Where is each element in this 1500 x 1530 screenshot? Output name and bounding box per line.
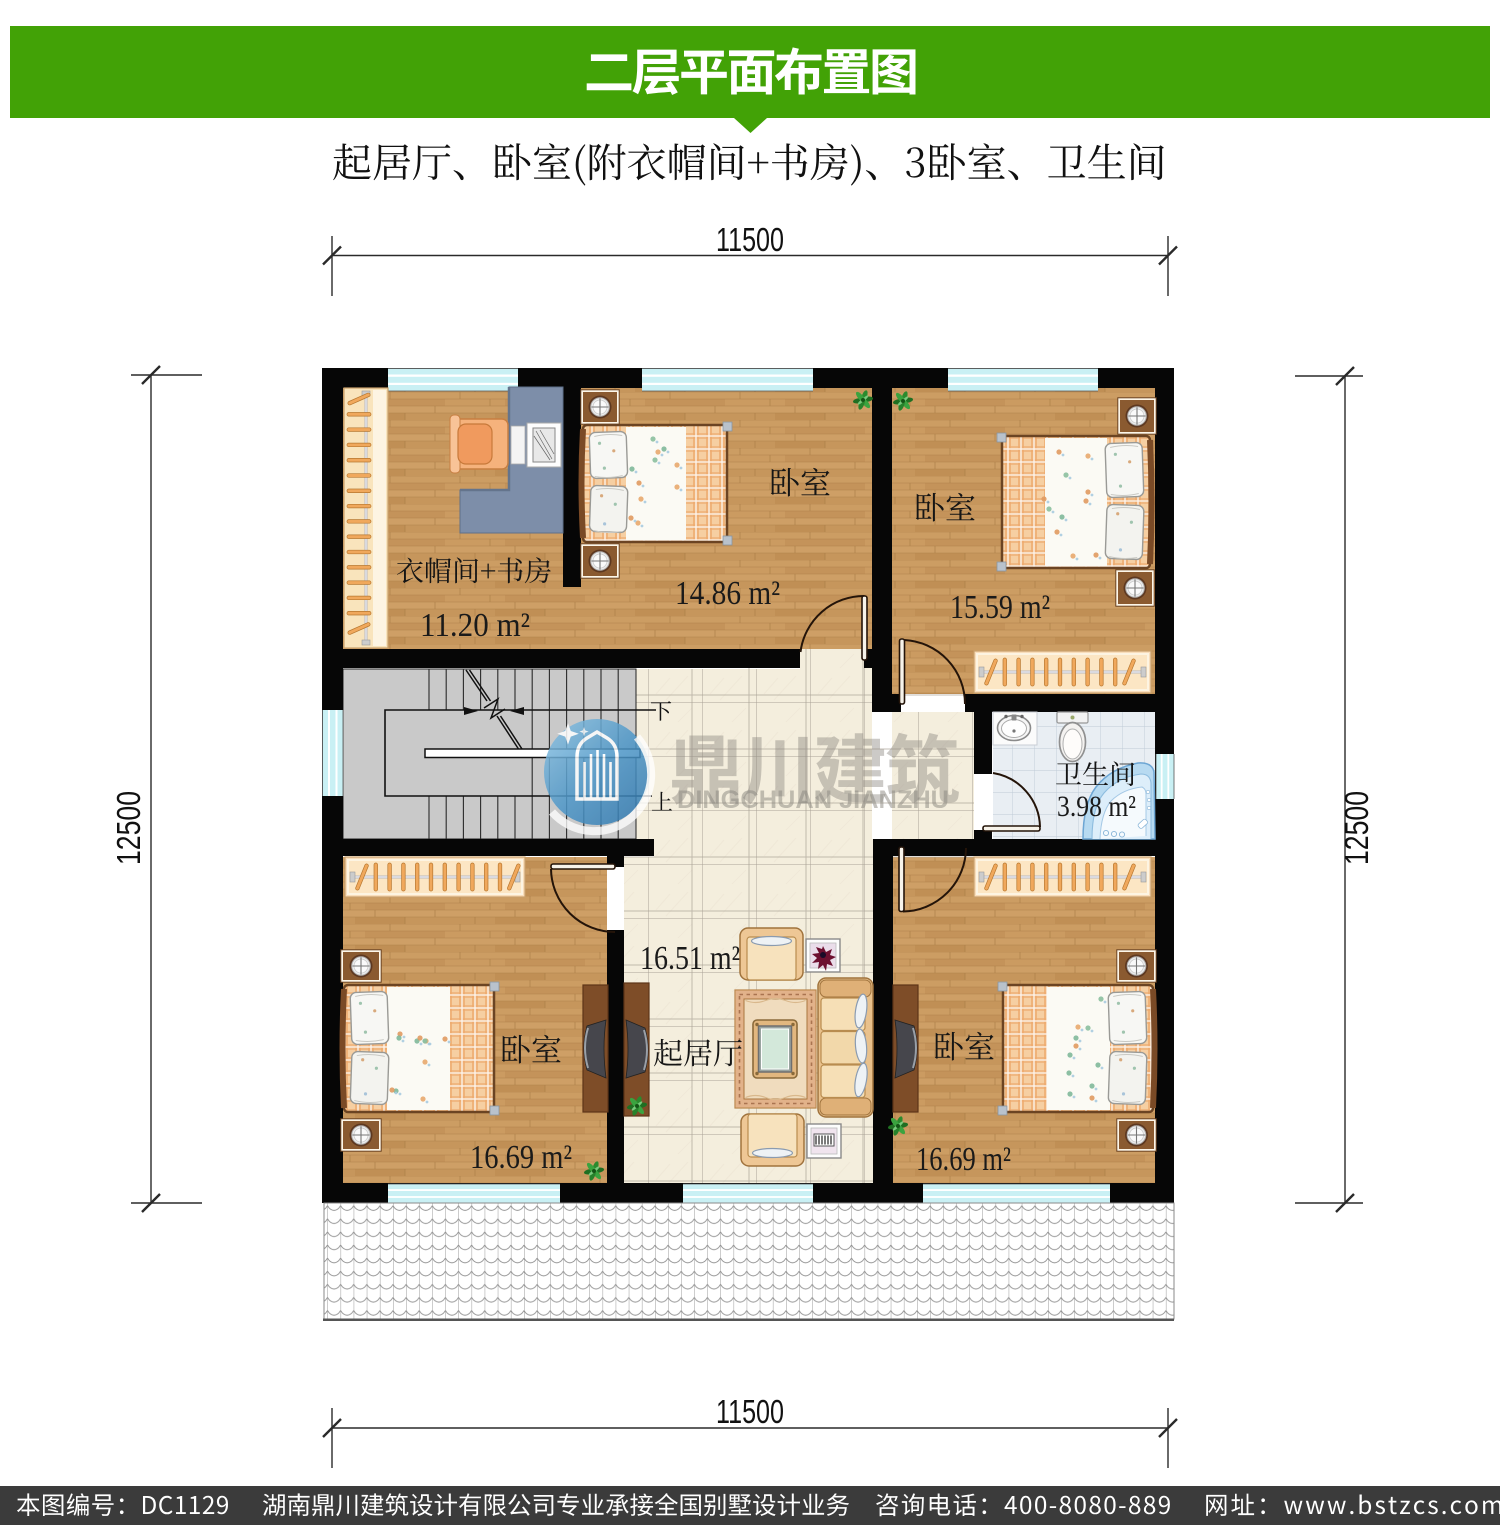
svg-text:16.51 m²: 16.51 m² [640,940,740,977]
svg-text:16.69 m²: 16.69 m² [470,1139,572,1176]
svg-text:14.86 m²: 14.86 m² [675,575,780,612]
svg-text:DINGCHUAN JIANZHU: DINGCHUAN JIANZHU [677,786,949,814]
svg-text:11500: 11500 [716,1393,784,1430]
svg-text:16.69 m²: 16.69 m² [916,1141,1011,1178]
svg-text:3.98 m²: 3.98 m² [1057,790,1136,823]
svg-text:12500: 12500 [1338,791,1375,865]
svg-text:11500: 11500 [716,221,784,258]
svg-text:12500: 12500 [110,791,147,865]
svg-text:15.59 m²: 15.59 m² [950,589,1050,626]
svg-text:11.20 m²: 11.20 m² [420,607,530,644]
